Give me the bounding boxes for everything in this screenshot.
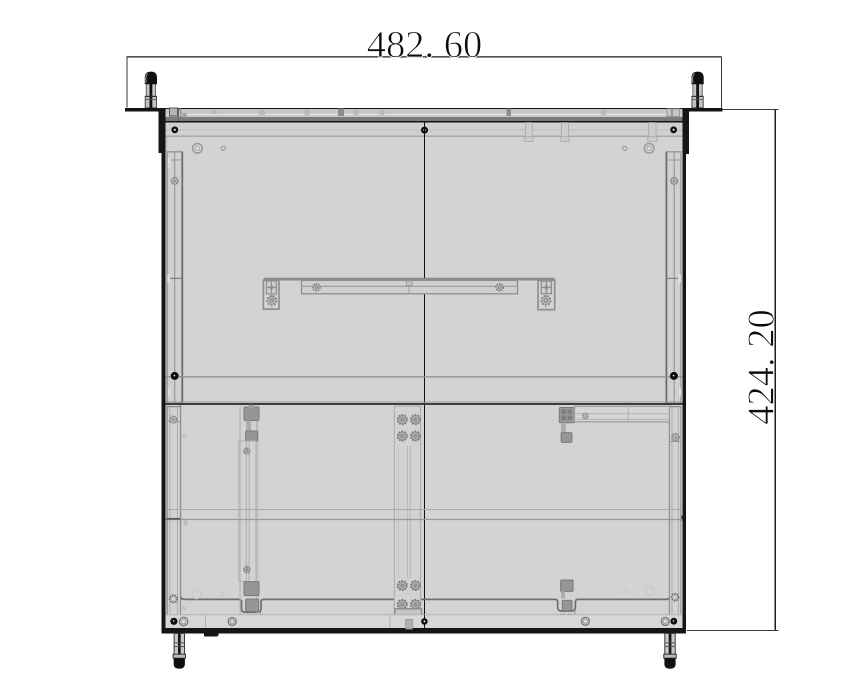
svg-text:424. 20: 424. 20 bbox=[741, 309, 783, 425]
svg-text:482. 60: 482. 60 bbox=[367, 24, 483, 66]
